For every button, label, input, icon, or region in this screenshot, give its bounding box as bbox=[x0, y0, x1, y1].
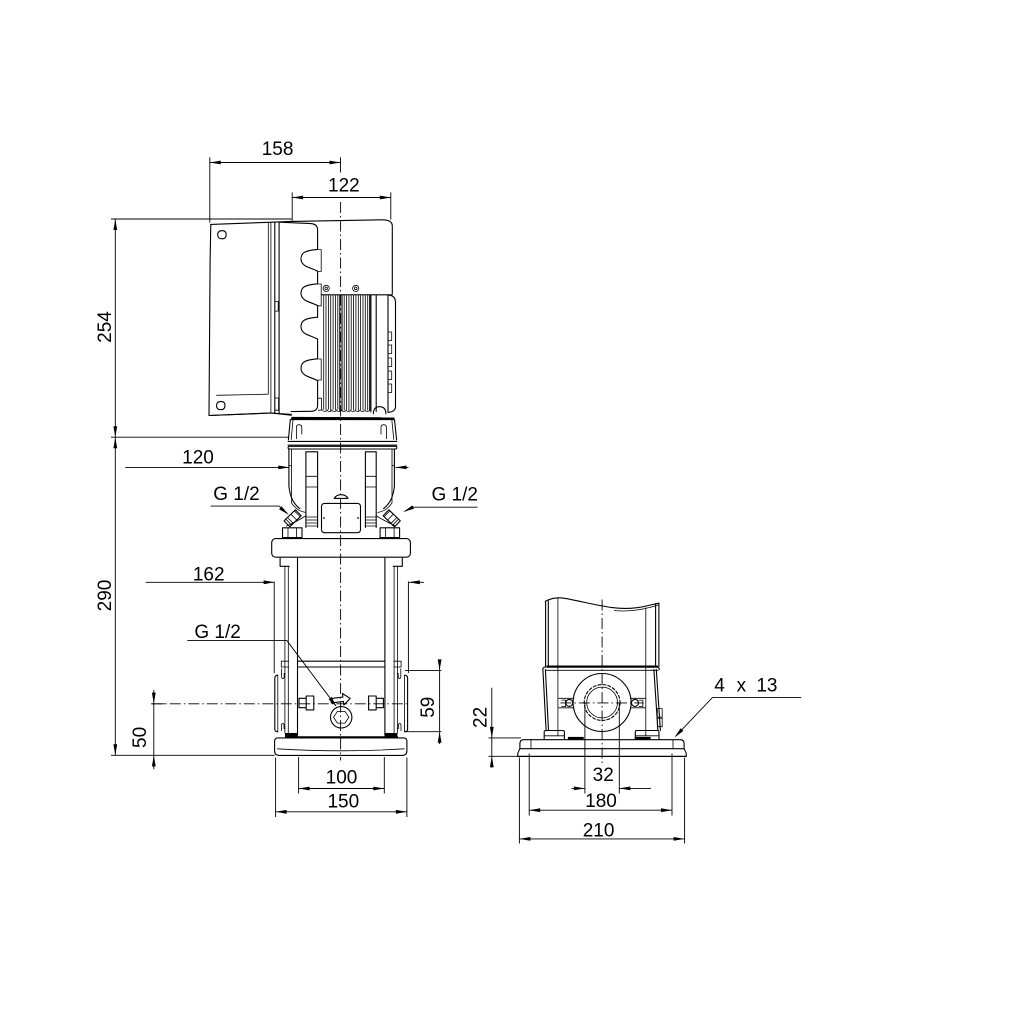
svg-text:x: x bbox=[737, 675, 747, 696]
svg-text:59: 59 bbox=[418, 697, 439, 718]
svg-text:210: 210 bbox=[583, 820, 615, 841]
svg-text:G 1/2: G 1/2 bbox=[431, 485, 477, 506]
svg-text:150: 150 bbox=[327, 792, 359, 813]
svg-text:4: 4 bbox=[714, 675, 725, 696]
svg-text:100: 100 bbox=[326, 767, 358, 788]
svg-text:162: 162 bbox=[193, 564, 225, 585]
svg-text:13: 13 bbox=[756, 675, 777, 696]
svg-text:254: 254 bbox=[95, 311, 116, 343]
svg-text:290: 290 bbox=[95, 580, 116, 612]
svg-text:122: 122 bbox=[328, 176, 360, 197]
svg-text:180: 180 bbox=[585, 791, 617, 812]
svg-text:22: 22 bbox=[470, 707, 491, 728]
svg-text:32: 32 bbox=[593, 765, 614, 786]
svg-text:G 1/2: G 1/2 bbox=[194, 622, 240, 643]
svg-text:50: 50 bbox=[130, 727, 151, 748]
svg-text:158: 158 bbox=[262, 139, 294, 160]
svg-text:G 1/2: G 1/2 bbox=[213, 484, 259, 505]
svg-text:120: 120 bbox=[182, 448, 214, 469]
